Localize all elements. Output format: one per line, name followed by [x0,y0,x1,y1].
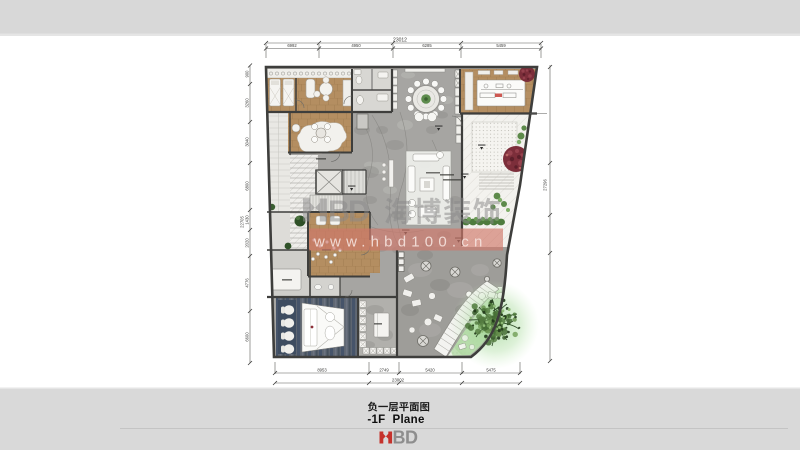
svg-text:-1F Plane: -1F Plane [367,414,424,426]
svg-text:2020: 2020 [245,238,250,248]
svg-text:8953: 8953 [317,368,327,373]
svg-text:6285: 6285 [422,43,432,48]
svg-text:23012: 23012 [393,38,407,44]
svg-text:3260: 3260 [245,98,250,108]
svg-text:22705: 22705 [240,216,245,228]
svg-text:5475: 5475 [486,368,496,373]
svg-text:6600: 6600 [245,332,250,342]
svg-text:900: 900 [245,70,250,78]
svg-text:www.hbd100.cn: www.hbd100.cn [313,234,488,251]
svg-text:BD: BD [328,195,369,229]
svg-text:1430: 1430 [245,215,250,225]
svg-text:6800: 6800 [245,181,250,191]
svg-text:5420: 5420 [425,368,435,373]
svg-text:4950: 4950 [351,43,361,48]
svg-text:2749: 2749 [379,368,389,373]
svg-text:23002: 23002 [392,378,405,383]
svg-text:6992: 6992 [287,43,297,48]
svg-text:BD: BD [393,428,418,448]
svg-text:3040: 3040 [245,137,250,147]
svg-text:27296: 27296 [543,179,548,191]
svg-text:5459: 5459 [496,43,506,48]
svg-text:4776: 4776 [245,278,250,288]
